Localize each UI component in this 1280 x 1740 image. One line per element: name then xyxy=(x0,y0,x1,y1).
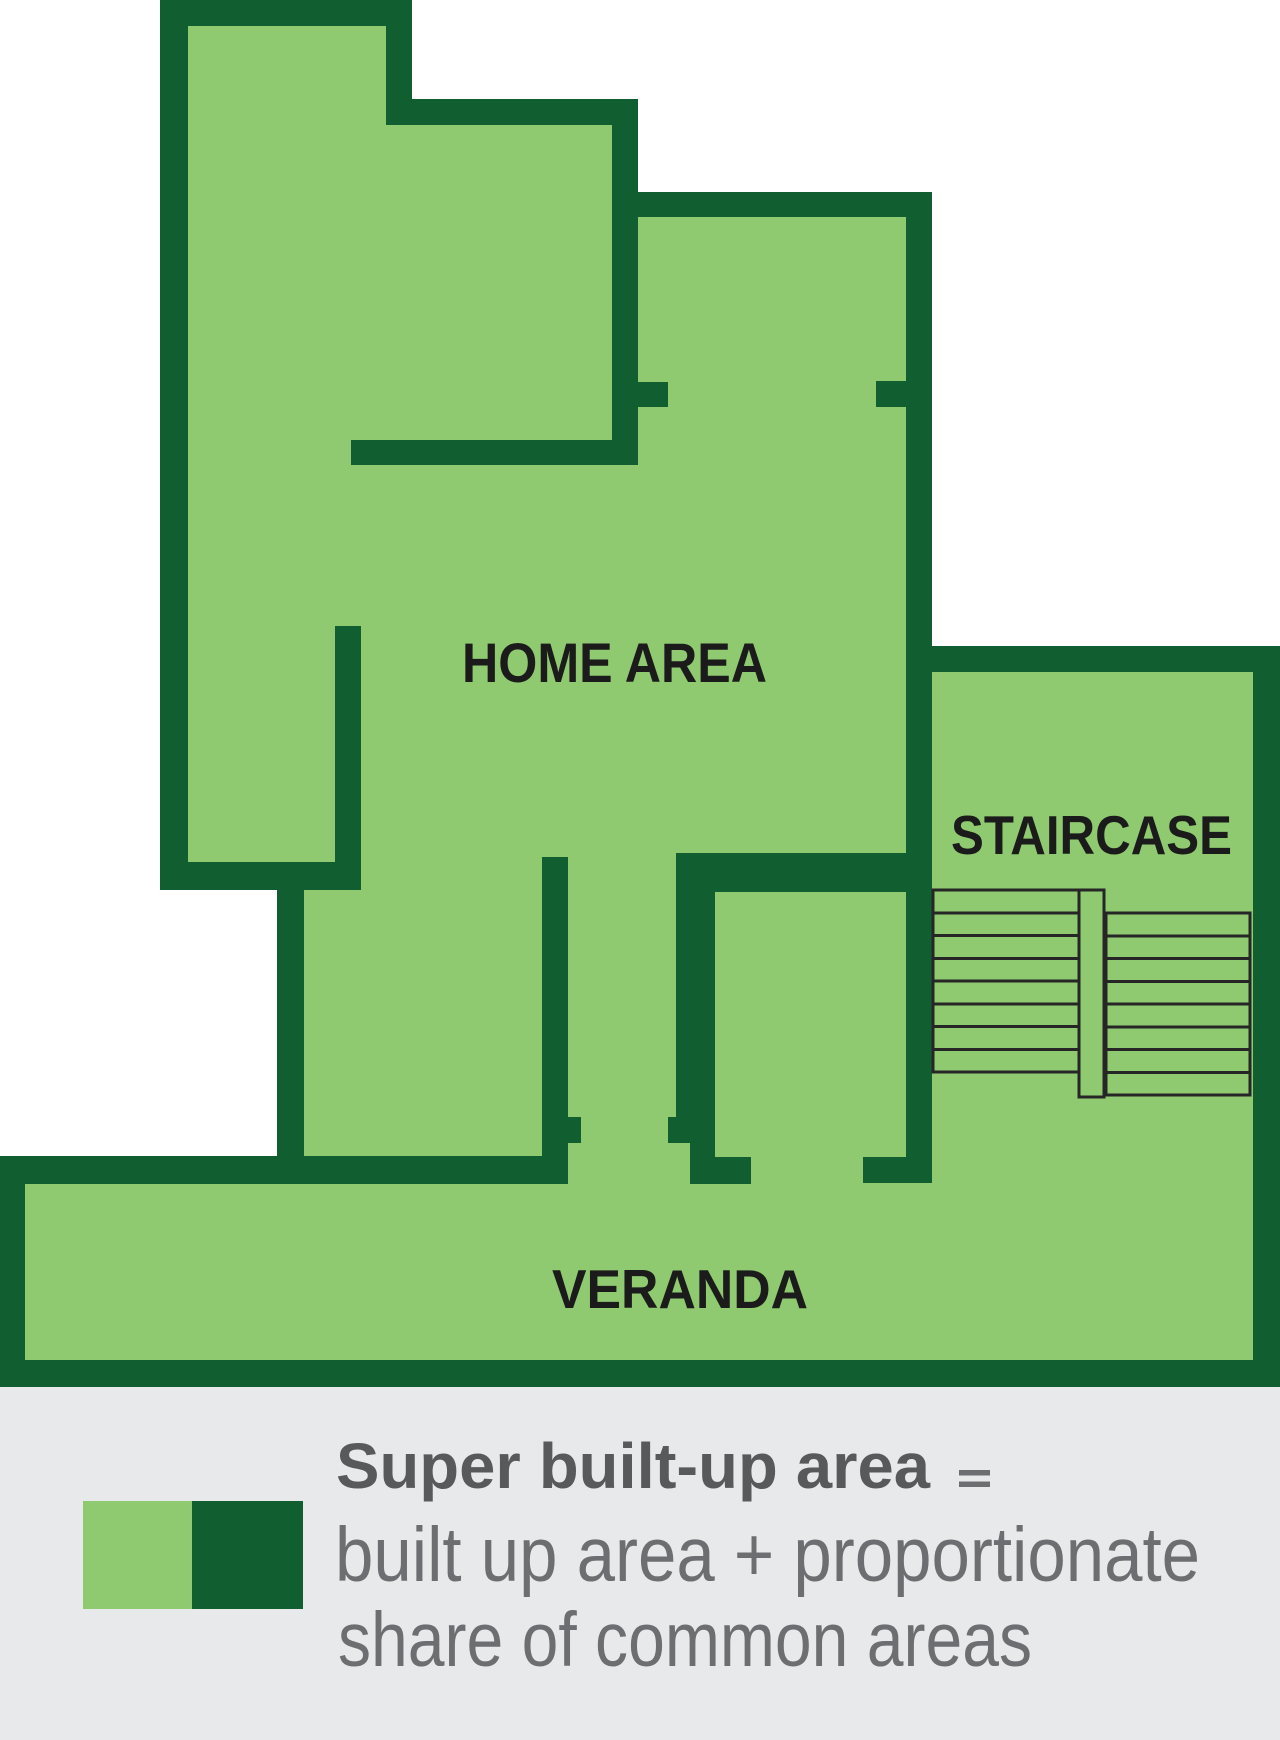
svg-text:VERANDA: VERANDA xyxy=(552,1259,808,1320)
svg-text:STAIRCASE: STAIRCASE xyxy=(951,804,1232,866)
svg-text:share of common areas: share of common areas xyxy=(338,1597,1032,1683)
svg-text:Super built-up area: Super built-up area xyxy=(336,1430,930,1502)
svg-text:built up area + proportionate: built up area + proportionate xyxy=(335,1512,1200,1598)
svg-text:HOME AREA: HOME AREA xyxy=(462,631,767,694)
